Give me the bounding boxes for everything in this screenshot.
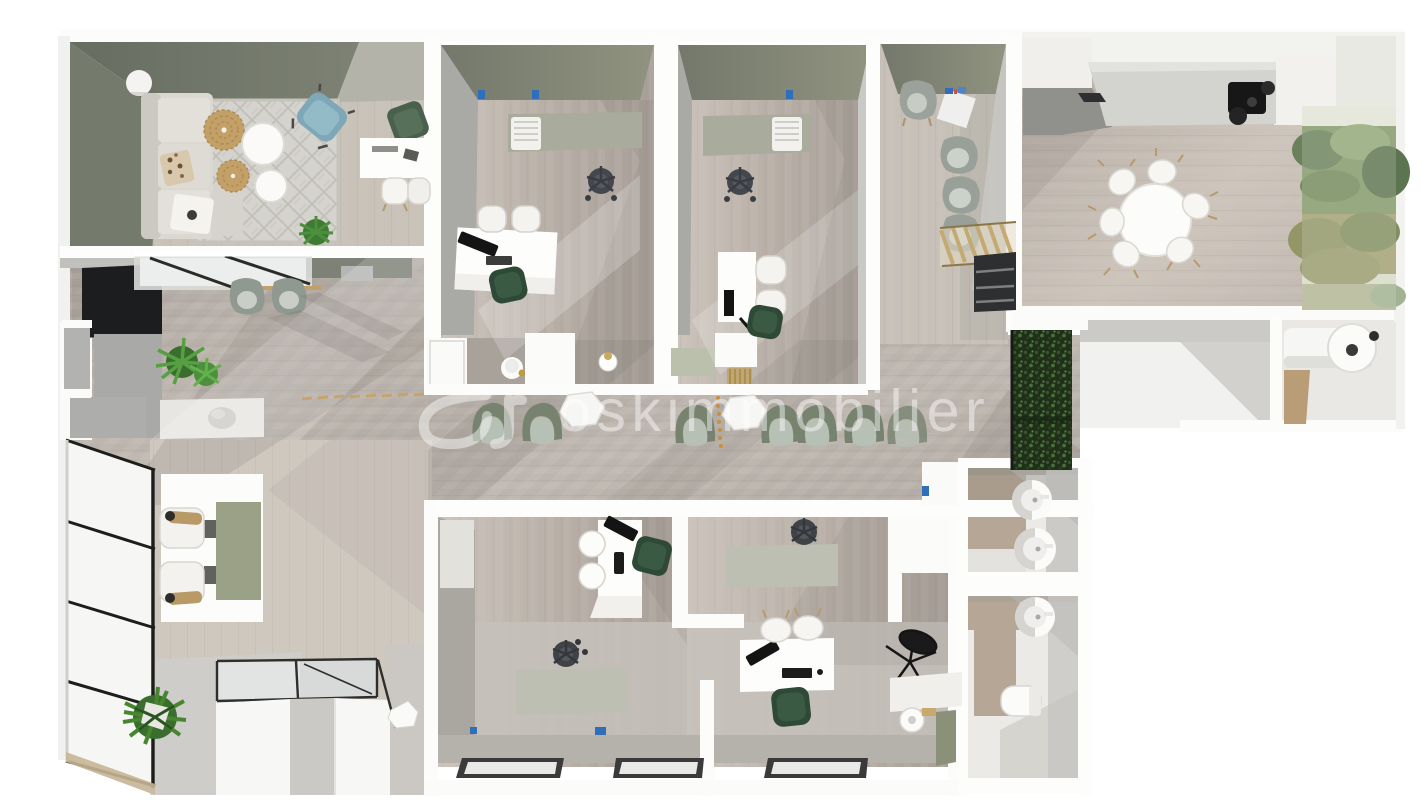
svg-text:oskimmobilier: oskimmobilier (558, 378, 990, 444)
